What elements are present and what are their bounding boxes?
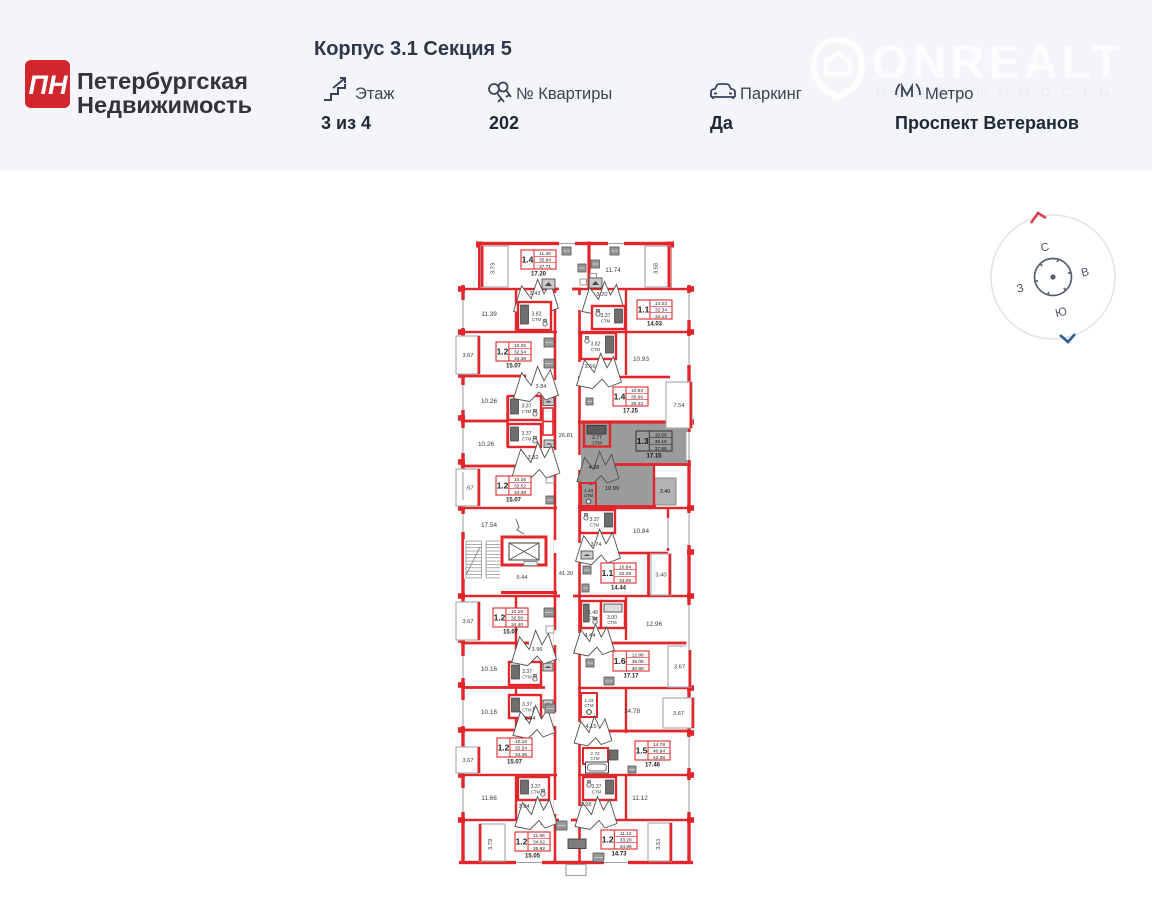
svg-text:15.05: 15.05: [525, 854, 541, 860]
svg-text:32.54: 32.54: [514, 350, 526, 356]
svg-text:1.1: 1.1: [602, 568, 614, 578]
svg-text:СТМ: СТМ: [592, 789, 602, 794]
svg-text:15.07: 15.07: [503, 630, 519, 636]
svg-text:14.78: 14.78: [653, 742, 665, 748]
svg-text:37.71: 37.71: [539, 264, 551, 270]
svg-text:15.07: 15.07: [507, 760, 523, 766]
svg-text:15.07: 15.07: [506, 498, 522, 504]
svg-text:4.44: 4.44: [585, 633, 596, 639]
svg-text:№ Квартиры: № Квартиры: [516, 85, 612, 103]
svg-text:3.73: 3.73: [491, 263, 497, 274]
svg-text:3.94: 3.94: [525, 716, 536, 722]
svg-text:1.2: 1.2: [497, 481, 509, 491]
svg-text:Проспект Ветеранов: Проспект Ветеранов: [895, 113, 1079, 133]
svg-text:1.4: 1.4: [522, 255, 534, 265]
svg-text:СТМ: СТМ: [588, 615, 598, 620]
svg-text:34.38: 34.38: [515, 752, 527, 758]
svg-text:3.67: 3.67: [462, 353, 473, 359]
svg-text:10.16: 10.16: [481, 709, 497, 716]
svg-text:СТМ: СТМ: [601, 318, 611, 323]
svg-text:12.96: 12.96: [646, 621, 662, 628]
svg-text:10.26: 10.26: [514, 343, 526, 349]
svg-text:17.54: 17.54: [481, 522, 497, 529]
svg-text:Да: Да: [710, 113, 734, 133]
svg-text:34.38: 34.38: [514, 356, 526, 362]
svg-text:Недвижимость: Недвижимость: [77, 92, 252, 118]
svg-text:14.78: 14.78: [624, 708, 640, 715]
svg-text:1.2: 1.2: [497, 347, 509, 357]
svg-text:3 из 4: 3 из 4: [321, 113, 371, 133]
svg-text:3.40: 3.40: [660, 489, 671, 495]
svg-text:11.12: 11.12: [620, 831, 632, 837]
svg-text:32.52: 32.52: [514, 484, 526, 490]
svg-text:34.13: 34.13: [655, 314, 667, 320]
svg-text:36.15: 36.15: [655, 439, 667, 445]
svg-text:3.96: 3.96: [532, 647, 543, 653]
svg-text:34.09: 34.09: [619, 578, 631, 584]
svg-text:СТМ: СТМ: [532, 317, 542, 322]
svg-text:1.6: 1.6: [614, 656, 626, 666]
svg-text:СТМ: СТМ: [531, 789, 541, 794]
svg-text:11.66: 11.66: [533, 833, 545, 839]
svg-text:17.25: 17.25: [623, 409, 639, 415]
svg-text:1.3: 1.3: [637, 436, 649, 446]
svg-text:35.84: 35.84: [539, 258, 551, 264]
svg-text:14.03: 14.03: [647, 322, 663, 328]
svg-text:10.16: 10.16: [481, 666, 497, 673]
svg-text:11.74: 11.74: [605, 267, 621, 274]
svg-text:СТМ: СТМ: [592, 441, 602, 446]
svg-text:34.02: 34.02: [533, 840, 545, 846]
svg-text:Паркинг: Паркинг: [740, 85, 802, 103]
svg-text:40.89: 40.89: [632, 666, 644, 672]
svg-text:3.20: 3.20: [597, 292, 608, 298]
svg-text:10.59: 10.59: [655, 433, 667, 439]
svg-text:39.43: 39.43: [631, 401, 643, 407]
svg-text:32.54: 32.54: [515, 746, 527, 752]
svg-text:10.26: 10.26: [514, 477, 526, 483]
svg-text:11.39: 11.39: [539, 251, 551, 257]
svg-text:35.92: 35.92: [533, 846, 545, 852]
svg-text:34.36: 34.36: [514, 490, 526, 496]
svg-text:40.94: 40.94: [653, 749, 665, 755]
svg-text:СТМ: СТМ: [584, 493, 593, 498]
svg-text:1.2: 1.2: [602, 835, 614, 845]
svg-text:3.51: 3.51: [656, 838, 662, 849]
svg-text:32.56: 32.56: [511, 616, 523, 622]
svg-text:ONREALT: ONREALT: [872, 35, 1124, 88]
svg-text:1.1: 1.1: [638, 305, 650, 315]
svg-text:15.07: 15.07: [506, 364, 522, 370]
svg-text:СТМ: СТМ: [522, 674, 532, 679]
svg-text:10.84: 10.84: [633, 528, 649, 535]
svg-text:1.5: 1.5: [636, 746, 648, 756]
svg-text:1.4: 1.4: [614, 392, 626, 402]
svg-text:10.16: 10.16: [515, 739, 527, 745]
svg-text:СТМ: СТМ: [585, 703, 594, 708]
svg-text:14.44: 14.44: [611, 586, 627, 592]
svg-text:17.20: 17.20: [531, 272, 547, 278]
svg-text:3.67: 3.67: [673, 711, 684, 717]
svg-text:СТМ: СТМ: [591, 756, 600, 761]
svg-text:17.46: 17.46: [645, 763, 661, 769]
svg-text:32.34: 32.34: [655, 308, 667, 314]
svg-text:11.39: 11.39: [481, 311, 497, 318]
svg-text:СТМ: СТМ: [591, 347, 601, 352]
svg-text:СТМ: СТМ: [590, 522, 600, 527]
svg-text:10.26: 10.26: [481, 398, 497, 405]
svg-text:202: 202: [489, 113, 519, 133]
svg-text:10.99: 10.99: [605, 486, 619, 492]
svg-text:10.93: 10.93: [631, 388, 643, 394]
svg-text:4.28: 4.28: [589, 465, 600, 471]
svg-text:10.84: 10.84: [619, 565, 631, 571]
svg-text:17.15: 17.15: [646, 454, 662, 460]
svg-text:3.84: 3.84: [536, 384, 547, 390]
svg-text:4.15: 4.15: [586, 724, 597, 730]
svg-text:34.40: 34.40: [511, 622, 523, 628]
svg-text:3.82: 3.82: [528, 455, 539, 461]
svg-text:11.12: 11.12: [632, 795, 648, 802]
svg-text:3.98: 3.98: [581, 802, 592, 808]
svg-text:3.67: 3.67: [674, 665, 685, 671]
svg-text:26.81: 26.81: [559, 433, 574, 439]
svg-text:37.85: 37.85: [655, 446, 667, 452]
svg-text:14.03: 14.03: [655, 301, 667, 307]
svg-text:3.94: 3.94: [519, 804, 530, 810]
svg-text:3.67: 3.67: [462, 758, 473, 764]
svg-text:32.39: 32.39: [619, 571, 631, 577]
svg-text:10.26: 10.26: [478, 441, 494, 448]
svg-text:3.40: 3.40: [655, 573, 666, 579]
svg-text:7.54: 7.54: [673, 403, 685, 409]
svg-text:Метро: Метро: [925, 85, 973, 103]
svg-text:3.67: 3.67: [462, 619, 473, 625]
svg-text:1.2: 1.2: [494, 613, 506, 623]
svg-text:3.79: 3.79: [488, 839, 494, 850]
svg-text:ПН: ПН: [29, 70, 68, 100]
svg-text:Петербургская: Петербургская: [77, 68, 248, 94]
svg-text:1.2: 1.2: [516, 837, 528, 847]
svg-text:СТМ: СТМ: [522, 707, 532, 712]
svg-text:Корпус 3.1 Секция 5: Корпус 3.1 Секция 5: [314, 38, 512, 60]
svg-text:34.96: 34.96: [620, 844, 632, 850]
svg-text:3.66: 3.66: [585, 364, 596, 370]
svg-text:39.05: 39.05: [632, 659, 644, 665]
svg-text:33.20: 33.20: [620, 838, 632, 844]
svg-text:14.73: 14.73: [611, 852, 627, 858]
svg-text:СТМ: СТМ: [522, 436, 532, 441]
svg-text:3.74: 3.74: [591, 542, 602, 548]
svg-text:10.93: 10.93: [633, 356, 649, 363]
svg-text:СТМ: СТМ: [607, 620, 617, 625]
svg-text:35.66: 35.66: [631, 395, 643, 401]
svg-text:10.16: 10.16: [511, 609, 523, 615]
svg-text:11.66: 11.66: [481, 795, 497, 802]
svg-text:3.43: 3.43: [530, 291, 541, 297]
svg-text:41.30: 41.30: [559, 571, 574, 577]
svg-text:1.2: 1.2: [498, 743, 510, 753]
svg-text:3.58: 3.58: [654, 263, 660, 274]
svg-text:Этаж: Этаж: [355, 85, 394, 103]
svg-text:5.44: 5.44: [516, 575, 528, 581]
svg-text:СТМ: СТМ: [522, 409, 532, 414]
svg-text:17.17: 17.17: [623, 674, 639, 680]
svg-text:12.96: 12.96: [632, 653, 644, 659]
svg-text:42.38: 42.38: [653, 755, 665, 761]
